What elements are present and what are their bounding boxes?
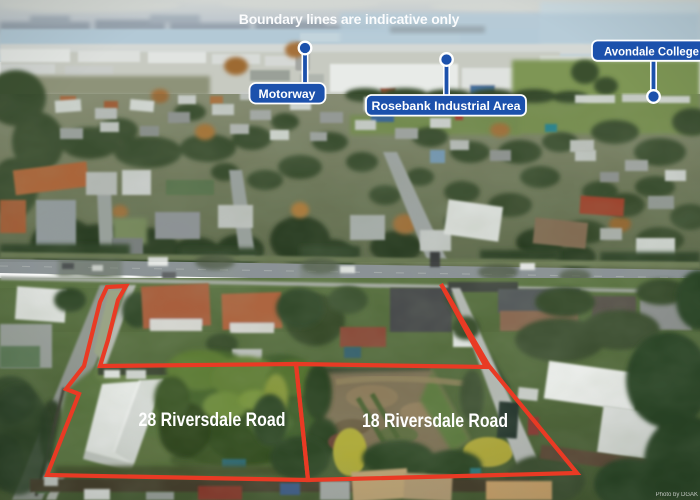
svg-text:Photo by DGAK: Photo by DGAK: [656, 492, 698, 498]
svg-text:Motorway: Motorway: [259, 87, 316, 101]
svg-text:Avondale College: Avondale College: [604, 45, 699, 59]
svg-text:Rosebank Industrial Area: Rosebank Industrial Area: [372, 99, 521, 113]
svg-text:28 Riversdale Road: 28 Riversdale Road: [139, 410, 286, 431]
svg-text:Boundary lines are indicative: Boundary lines are indicative only: [239, 11, 460, 27]
svg-text:18 Riversdale Road: 18 Riversdale Road: [362, 411, 508, 432]
